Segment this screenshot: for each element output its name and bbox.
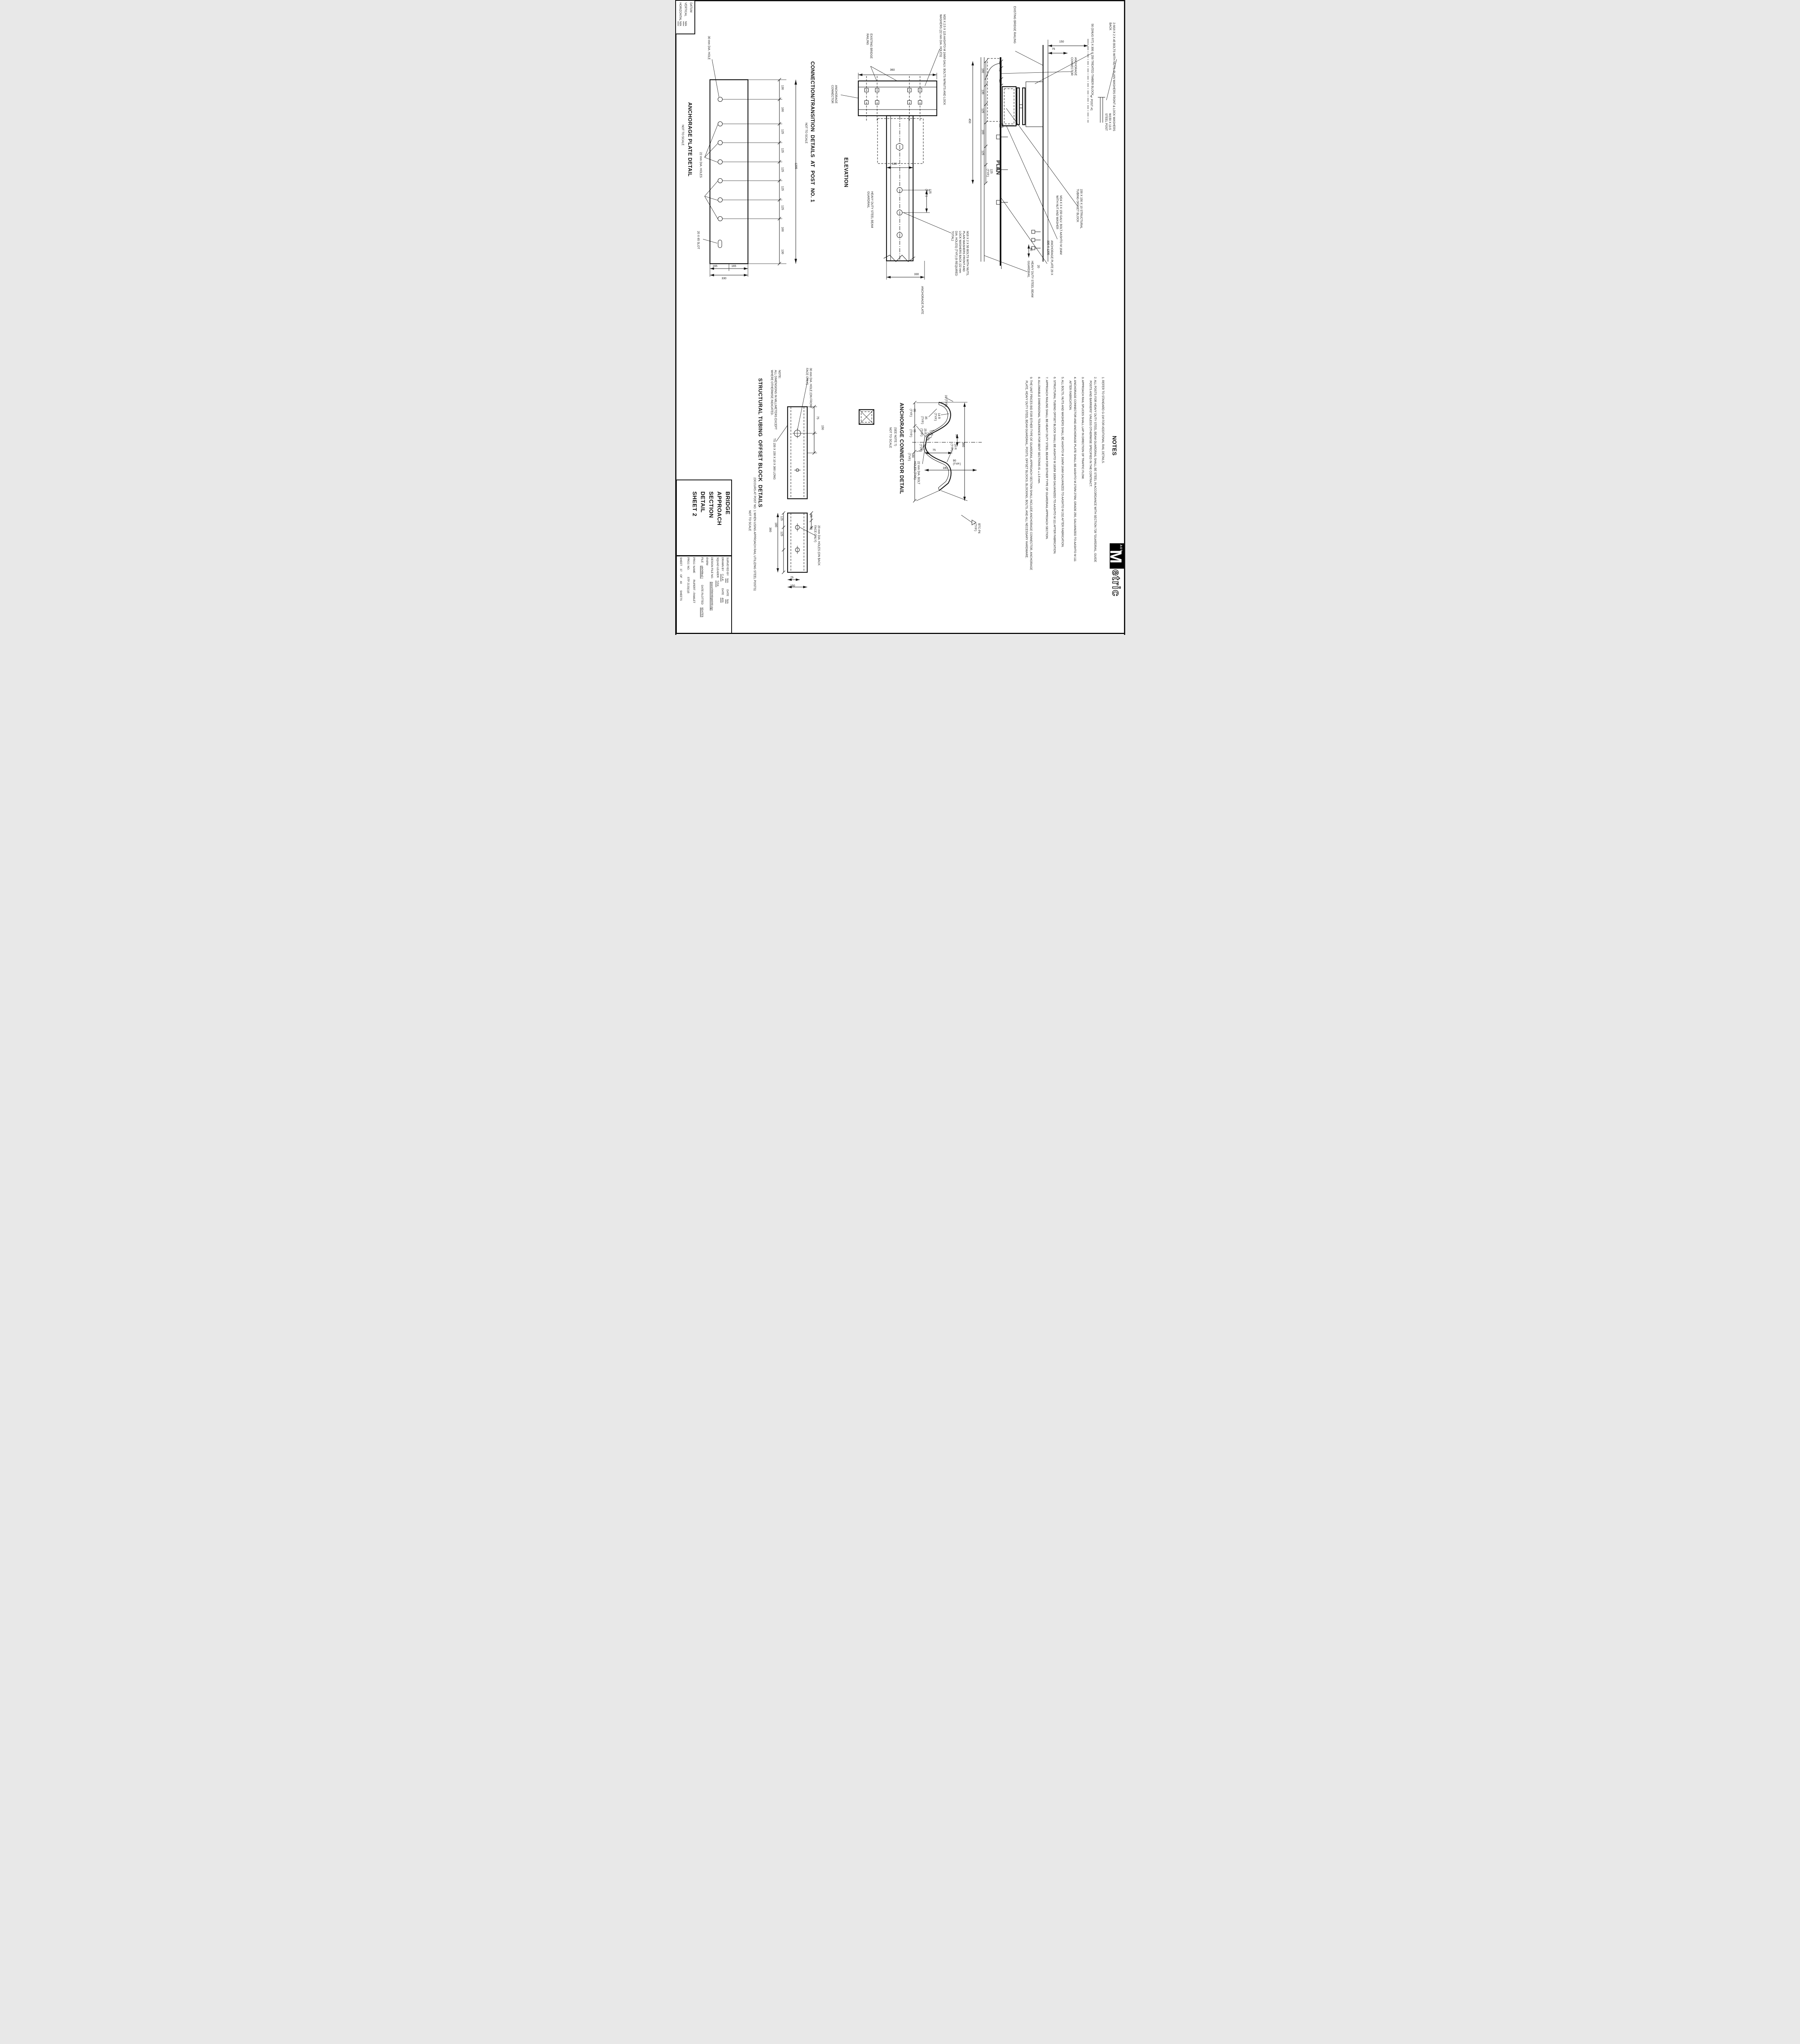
note-item-5: 5. ALL BOLTS, NUTS AND WASHERS SHALL BE … [1060,377,1064,571]
elev-anchorage-plate-label: ANCHORAGE PLATE [920,286,924,314]
datum-horizontal-label: HORIZONTAL [678,2,682,21]
conn-dim-14r-top: 14 R (TYP.) [934,413,941,425]
tb-proj-name-label: PROJ. NAME [692,557,695,573]
tubing-occurs-note: (OCCURS AT POST NO. 1 WHEN USING APPROAC… [753,477,757,612]
tubing-dim-125b: 125 [780,531,784,536]
notes-list: 1. REFER TO STANDARD G-1M FOR ADDITIONAL… [1021,377,1106,571]
tubing-dim-150a: 150 [821,425,824,430]
tb-design-file-label: DESIGN FILE NO. [710,557,713,579]
tubing-title: STRUCTURAL TUBING OFFSET BLOCK DETAILS [757,378,763,507]
tb-row-drawn: DRAWN BYC.A.K.DATE4/01 [721,557,724,632]
conn-dim-35: 35 (TYP.) [920,416,928,427]
plan-cl-post-label: ℄ POST #1 [1090,95,1093,111]
plan-m24-note: M24 X 3 X 150 GALV. BOLT AASHTO M 164M W… [1055,195,1063,261]
elev-dim-360: 360 [890,69,895,72]
plate-hole-top-label: 30 mm DIA. HOLE [707,36,711,60]
conn-dim-25: 25 (TYP.) [926,433,934,443]
plan-dim-75: 75 [1052,48,1055,51]
tb-row-design-file: DESIGN FILE NO./pave/00b048/pb048.dgn [710,557,714,632]
tb-squad-label: SQUAD LEADER [716,557,719,578]
connector-title: ANCHORAGE CONNECTOR DETAIL [898,403,905,494]
tb-iparm-label: IPARM [705,557,708,565]
tb-plotted-value: $DATE$ [701,605,703,617]
title-block-divider [676,555,732,556]
connection-title: CONNECTION/TRANSITION DETAILS AT POST NO… [809,61,816,202]
tb-sheet-total: 40 [679,578,682,584]
plate-dim-chain-3: 125 [781,129,784,134]
metric-logo-m: M [1109,550,1122,563]
note-item-7: 7. APPROACH RAILING SHALL BE HEAVY DUTY … [1044,377,1049,571]
conn-dim-180: 180 [943,467,948,470]
tb-surveyed-label: SURVEYED BY [726,557,729,576]
connection-scale: NOT TO SCALE [804,123,808,143]
plan-dim-80: 80 [1029,248,1033,251]
plan-dim-160a: 160 [981,68,985,73]
datum-vertical-label: VERTICAL [684,2,687,16]
plan-title: PLAN [995,160,1001,175]
plate-dim-chain-8: 160 [781,227,784,232]
tb-sheet-no: 37 [679,566,682,572]
plate-dim-chain-9: 130 [781,249,784,254]
note-item-2: 2. ALL POSTS FOR HEAVY DUTY STEEL BEAM G… [1088,377,1097,571]
tb-row-file: FILEpb048ba2.iDATE PLOTTED$DATE$ [701,557,704,632]
plate-dim-chain-5: 125 [781,167,784,172]
connector-see-note: (SEE NOTE 7) [893,427,897,446]
conn-dim-95: 95 (TYP.) [909,429,916,440]
plan-dim-450: 450 [968,119,972,123]
plan-anchorage-plate-label: ANCHORAGE PLATE 20 X 330 X 1205 [1046,240,1054,277]
elevation-title: ELEVATION [843,157,849,187]
tubing-dim-28b: 28 [809,527,813,530]
tubing-dim-28a: 28 [809,514,813,518]
conn-dim-14r-bot: 14 R (TYP.) [950,444,957,456]
plate-detail-scale: NOT TO SCALE [681,125,685,146]
conn-dim-75: 75 [933,449,936,452]
tubing-dim-75a: 75 [816,416,819,419]
note-item-1: 1. REFER TO STANDARD G-1M FOR ADDITIONAL… [1100,377,1105,571]
plan-dim-125b: 125 [981,150,985,155]
plan-dim-75b: 75 [998,68,1002,72]
metric-logo-box: AOT M [1110,543,1124,569]
tb-row-surveyed: SURVEYED BYN/ADATEN/A [726,557,729,632]
plate-dim-total: 1205 [794,163,798,169]
tb-surveyed-date: N/A [726,596,729,604]
plan-dim-40b: 40 [998,79,1002,83]
note-item-6: 6. STRUCTURAL TUBING OFFSET BLOCK SHALL … [1052,377,1057,571]
plate-dim-165-left: 165 [713,265,718,268]
tubing-dim-150b: 150 [790,585,795,588]
datum-title: DATUM [689,2,693,12]
plan-dim-150: 150 [1059,40,1064,44]
plan-dim-40a: 40 [998,61,1002,65]
tb-row-proj-name: PROJ. NAMERUPERT - PAWLET [692,557,696,632]
note-item-8: 8. ALLOWABLE DIMENSIONAL TOLERANCE FOR B… [1037,377,1041,571]
tb-row-sheet: SHEET37OF40SHEETS [679,557,683,632]
note-item-3: 3. APPROACH RAIL SPLICES SHALL LAP IN DI… [1080,377,1085,571]
tb-surveyed-date-label: DATE [726,583,729,596]
tb-file-value: pb048ba2.i [701,563,703,579]
sheet-border-bottom [675,633,1125,634]
conn-dim-85: 85 (TYP.) [909,409,916,419]
connector-scale: NOT TO SCALE [889,427,892,448]
plate-dim-165-right: 165 [732,265,737,268]
tb-drawn-label: DRAWN BY [721,557,724,571]
sheet-border-top [675,0,1125,1]
plate-slot-label: 20 X 65 SLOT [696,231,700,249]
tubing-dim-75b: 75 [790,576,794,580]
elev-guardrail-label: HEAVY DUTY STEEL BEAM GUARDRAIL [866,191,874,235]
tubing-drawing [771,364,914,597]
metric-logo-text: etric [1110,569,1122,597]
elev-dim-125-typ: 125 (TYP.) [925,189,932,199]
plan-existing-railing-label: EXISTING BRIDGE RAILING [1013,6,1016,50]
plan-guardrail-label: HEAVY DUTY STEEL BEAM GUARDRAIL [1027,261,1034,298]
tb-proj-name-value: RUPERT - PAWLET [692,573,695,603]
tb-plotted-label: DATE PLOTTED [701,578,703,605]
plan-anchorage-connector-label: ANCHORAGE CONNECTOR [1070,57,1077,93]
tb-surveyed-value: N/A [726,576,729,583]
tb-squad-value: T.P.K. [716,578,719,587]
conn-btc-label: BTC-P4 (TYP.) [974,523,981,540]
elev-dim-330: 330 [914,273,919,276]
elev-m20-note: M20 X 2.5 X 115 AASHTO M 164M GALV. BOLT… [939,14,946,112]
tb-drawn-value: C.A.K. [721,571,724,581]
tb-drawn-date-label: DATE [721,582,724,595]
tb-of-label: OF [679,572,682,578]
plate-dim-330: 330 [722,277,727,280]
plate-dim-chain-4: 125 [781,148,784,153]
note-item-4: 4. ANCHORAGE CONNECTOR AND ANCHORAGE PLA… [1068,377,1077,571]
tubing-hole-front-label: 30 mm DIA. HOLE (ON FRONT FACE ONLY) [805,368,813,409]
tb-proj-no-value: STP 2133(1)S [687,570,690,593]
conn-holes-label: 22 mm DIA. BOLT HOLES (TYP.) [913,461,920,491]
tubing-ts-label: TS 150 X 150 X 10 X 360 LONG [772,438,776,489]
plan-dim-125a: 125 [981,108,985,113]
plan-tubing-label: 150 X 150 X 10 STRUCTURAL TUBING OFFSET … [1076,189,1083,238]
tubing-dim-180: 180 [774,522,778,527]
plate-detail-title: ANCHORAGE PLATE DETAIL [687,102,693,177]
tubing-scale: NOT TO SCALE [748,510,752,531]
conn-dim-90: 90 (TYP.) [953,459,965,466]
conn-dim-10: 10 (TYP.) [944,395,948,407]
plate-holes-label: 22 mm DIA. HOLES [699,152,703,178]
notes-title: NOTES [1111,436,1118,456]
conn-dim-50: 50 (TYP.) [919,444,926,455]
plan-steel-post-label: W150 X 13.5 STEEL POST [1104,113,1112,138]
plate-dim-chain-2: 160 [781,107,784,112]
plate-dim-chain-7: 125 [781,205,784,210]
tb-row-proj-no: PROJ. NO.STP 2133(1)S [687,557,690,632]
tb-sheets-label: SHEETS [679,584,682,601]
tubing-holes-back-label: 20 mm DIA. HOLES (ON BACK FACE ONLY) [813,525,821,566]
sheet-title: BRIDGE APPROACH SECTION DETAIL SHEET 2 [691,491,732,525]
plan-dim-160b: 160 [981,130,985,134]
tb-sheet-label: SHEET [679,557,682,566]
plan-dim-125-typ: 125 (TYP.) [986,169,993,179]
plan-drawing [965,35,1123,288]
tb-design-file-value: /pave/00b048/pb048.dgn [710,579,713,611]
note-item-9: 9. THE UNIT PRICES BID FOR EITHER TYPE O… [1024,377,1033,571]
tubing-dim-360: 360 [768,527,772,532]
tb-drawn-date: 4/01 [721,595,724,603]
conn-dim-30: 30 [955,434,958,437]
plan-dim-130: 130 [981,90,985,94]
elev-existing-railing-label: EXISTING BRIDGE RAILING [866,34,873,66]
plan-dim-20: 20 [1037,265,1040,268]
tb-file-label: FILE [701,557,703,563]
tb-row-squad: SQUAD LEADERT.P.K. [716,557,719,632]
drawing-sheet: DATUM VERTICAL N/A HORIZONTAL N/A [675,0,1125,635]
datum-vertical-value: N/A [684,21,687,26]
datum-horizontal-value: N/A [678,21,682,26]
elev-dim-180: 180 [892,163,897,166]
plate-dim-chain-1: 130 [781,85,784,90]
plate-dim-chain-6: 125 [781,186,784,191]
sheet-border-right [1124,0,1125,635]
tb-proj-no-label: PROJ. NO. [687,557,690,570]
tubing-dim-125a: 125 [780,516,784,521]
tb-row-iparm: IPARM [705,557,709,632]
elev-anchorage-connector-label: ANCHORAGE CONNECTOR [831,85,838,121]
conn-dim-360: 360 [961,442,965,447]
anchorage-plate-drawing [696,35,806,280]
